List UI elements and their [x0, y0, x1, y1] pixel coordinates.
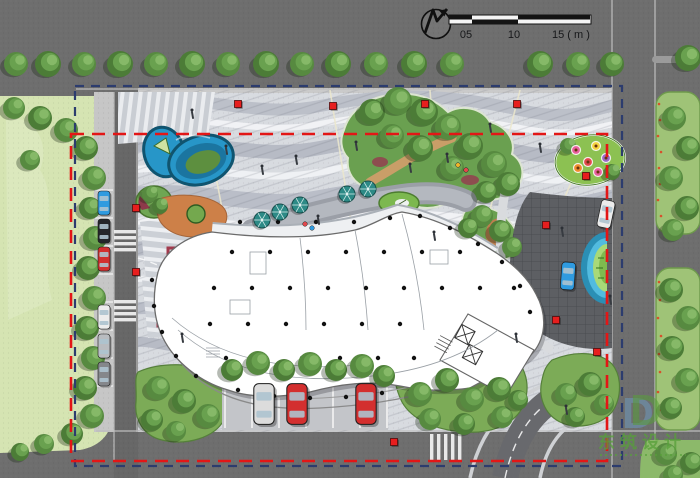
scale-label-15: 15 ( m )	[552, 29, 590, 41]
red-marker-icon	[133, 205, 141, 213]
column-dot	[360, 322, 364, 326]
column-dot	[344, 250, 348, 254]
logo-text-cn: 东筑设计	[598, 432, 686, 452]
column-dot	[364, 286, 368, 290]
logo-monogram-front: D	[630, 386, 662, 435]
car-icon	[287, 384, 310, 427]
column-dot	[238, 220, 242, 224]
column-dot	[344, 395, 348, 399]
site-plan-svg: 05 10 15 ( m ) D D 东筑设计	[0, 0, 700, 478]
column-dot	[518, 284, 522, 288]
column-dot	[476, 242, 480, 246]
flower-cluster	[594, 168, 603, 177]
column-dot	[268, 250, 272, 254]
red-marker-icon	[391, 439, 399, 447]
column-dot	[528, 310, 532, 314]
car-icon	[98, 362, 112, 388]
car-icon	[98, 334, 112, 360]
flower-cluster	[584, 158, 593, 167]
column-dot	[458, 250, 462, 254]
cyclist-figure	[310, 226, 315, 231]
flower-speckle	[657, 199, 660, 202]
flower-speckle	[660, 335, 663, 338]
column-dot	[376, 356, 380, 360]
site-plan-canvas: 05 10 15 ( m ) D D 东筑设计	[0, 0, 700, 478]
flower-cluster	[592, 142, 601, 151]
flower-cluster	[574, 164, 583, 173]
column-dot	[478, 286, 482, 290]
column-dot	[194, 374, 198, 378]
car-icon	[98, 247, 112, 273]
column-dot	[284, 322, 288, 326]
column-dot	[448, 226, 452, 230]
column-dot	[352, 220, 356, 224]
column-dot	[388, 216, 392, 220]
column-dot	[402, 286, 406, 290]
car-icon	[98, 191, 112, 217]
red-marker-icon	[594, 349, 602, 357]
red-marker-icon	[133, 269, 141, 277]
flower-speckle	[658, 281, 661, 284]
column-dot	[306, 250, 310, 254]
scale-label-10: 10	[508, 29, 520, 41]
car-icon	[98, 305, 112, 331]
column-dot	[236, 388, 240, 392]
red-marker-icon	[583, 173, 591, 181]
column-dot	[322, 322, 326, 326]
column-dot	[160, 330, 164, 334]
cyclist-figure	[464, 168, 469, 173]
column-dot	[412, 356, 416, 360]
car-icon	[254, 384, 277, 427]
column-dot	[288, 286, 292, 290]
car-icon	[560, 262, 578, 292]
column-dot	[420, 250, 424, 254]
flower-speckle	[657, 317, 660, 320]
column-dot	[500, 260, 504, 264]
flower-speckle	[660, 215, 663, 218]
flower-cluster	[572, 146, 581, 155]
column-dot	[152, 304, 156, 308]
cyclist-figure	[303, 222, 308, 227]
column-dot	[418, 214, 422, 218]
flower-speckle	[658, 167, 661, 170]
flower-speckle	[658, 103, 661, 106]
red-marker-icon	[235, 101, 243, 109]
flower-speckle	[657, 135, 660, 138]
car-icon	[98, 219, 112, 245]
red-marker-icon	[543, 222, 551, 230]
column-dot	[224, 356, 228, 360]
column-dot	[398, 322, 402, 326]
column-dot	[326, 286, 330, 290]
scale-label-5: 05	[460, 29, 472, 41]
red-marker-icon	[330, 103, 338, 111]
column-dot	[208, 322, 212, 326]
column-dot	[250, 286, 254, 290]
column-dot	[246, 322, 250, 326]
column-dot	[150, 278, 154, 282]
column-dot	[512, 286, 516, 290]
column-dot	[440, 286, 444, 290]
column-dot	[212, 286, 216, 290]
building-footprint	[154, 212, 546, 409]
north-arrow-icon	[422, 9, 451, 39]
cyclist-figure	[456, 163, 461, 168]
red-marker-icon	[422, 101, 430, 109]
flower-speckle	[659, 371, 662, 374]
column-dot	[174, 354, 178, 358]
red-marker-icon	[553, 317, 561, 325]
column-dot	[380, 391, 384, 395]
flower-speckle	[660, 151, 663, 154]
column-dot	[382, 250, 386, 254]
car-icon	[356, 384, 379, 427]
red-marker-icon	[514, 101, 522, 109]
column-dot	[230, 250, 234, 254]
